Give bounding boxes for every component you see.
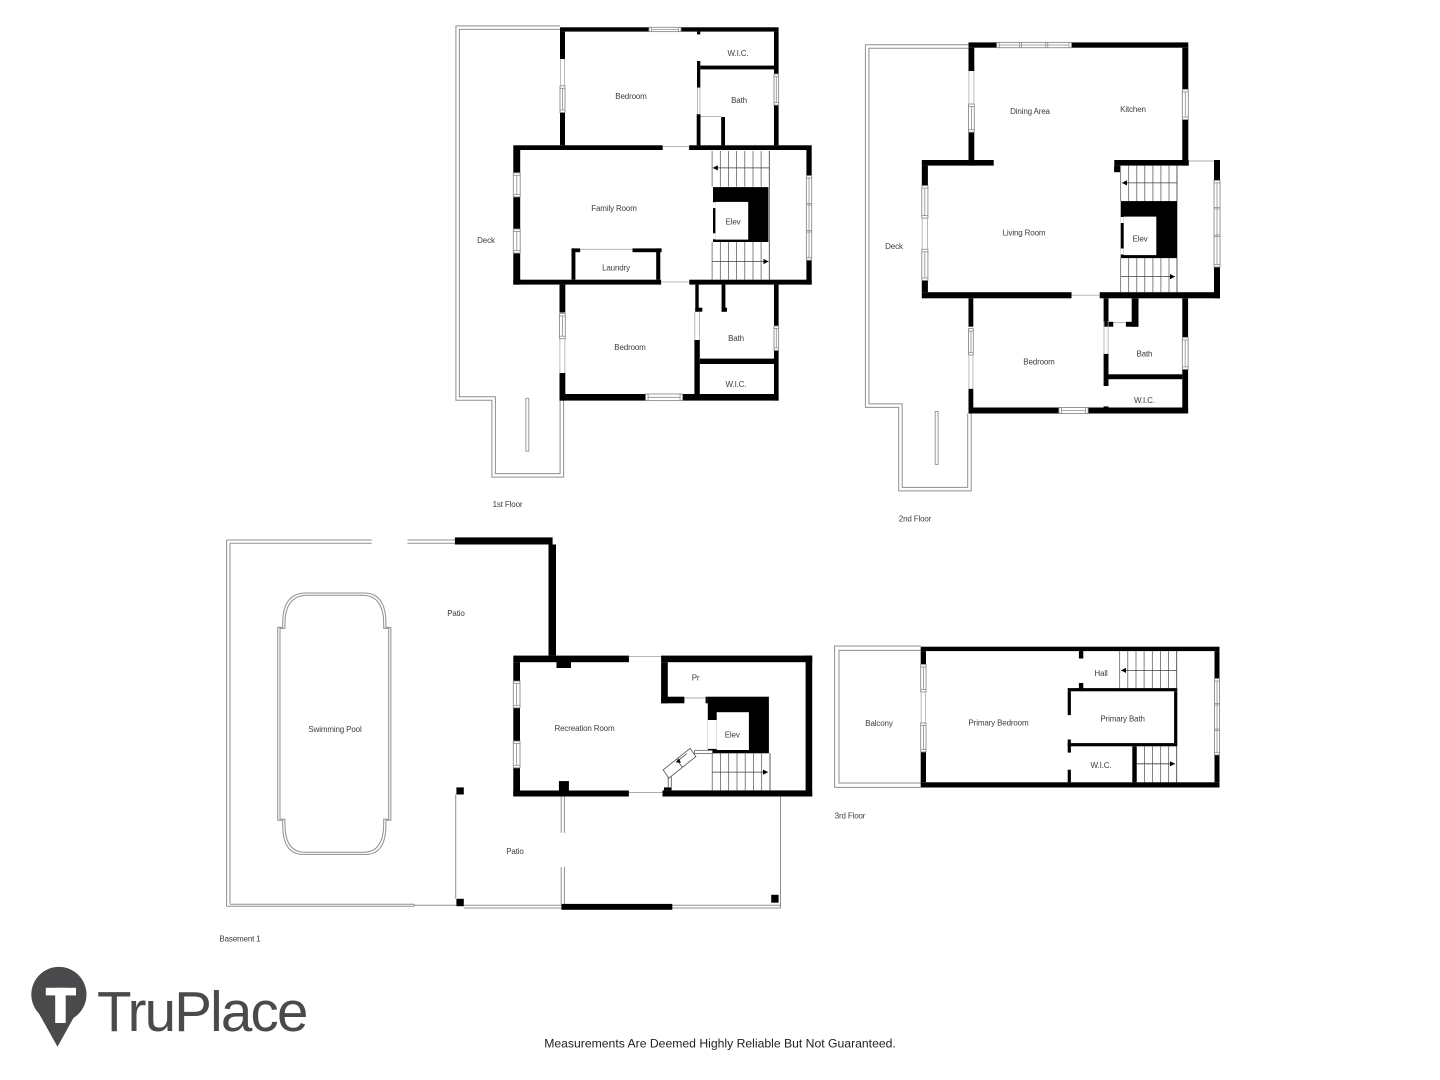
svg-text:Bedroom: Bedroom <box>1023 358 1055 367</box>
svg-text:Bath: Bath <box>1136 349 1152 358</box>
svg-text:Elev: Elev <box>726 217 741 226</box>
svg-text:Elev: Elev <box>1133 235 1148 244</box>
svg-text:W.I.C.: W.I.C. <box>1091 761 1112 770</box>
svg-text:Primary Bath: Primary Bath <box>1100 715 1144 724</box>
svg-text:Swimming Pool: Swimming Pool <box>308 725 362 734</box>
svg-text:Recreation Room: Recreation Room <box>554 724 614 733</box>
svg-text:Primary Bedroom: Primary Bedroom <box>969 718 1029 727</box>
svg-text:Basement 1: Basement 1 <box>219 934 261 943</box>
svg-text:Pr: Pr <box>692 674 700 683</box>
svg-text:W.I.C.: W.I.C. <box>726 380 747 389</box>
svg-text:1st Floor: 1st Floor <box>493 500 523 509</box>
svg-text:Living Room: Living Room <box>1003 228 1046 237</box>
svg-text:Bath: Bath <box>731 96 747 105</box>
svg-text:TruPlace: TruPlace <box>97 980 307 1043</box>
svg-text:Laundry: Laundry <box>602 263 630 272</box>
svg-text:Hall: Hall <box>1094 669 1108 678</box>
svg-text:Measurements Are Deemed Highly: Measurements Are Deemed Highly Reliable … <box>544 1036 896 1050</box>
svg-text:Family Room: Family Room <box>591 204 637 213</box>
svg-text:Patio: Patio <box>447 609 465 618</box>
svg-text:W.I.C.: W.I.C. <box>728 49 749 58</box>
svg-text:2nd Floor: 2nd Floor <box>899 514 932 523</box>
svg-text:Bath: Bath <box>728 334 744 343</box>
svg-text:Patio: Patio <box>506 847 524 856</box>
svg-text:Kitchen: Kitchen <box>1120 105 1146 114</box>
svg-text:Elev: Elev <box>725 730 740 739</box>
svg-text:Bedroom: Bedroom <box>614 343 646 352</box>
svg-text:W.I.C.: W.I.C. <box>1134 396 1155 405</box>
svg-text:Deck: Deck <box>885 242 904 251</box>
svg-text:Balcony: Balcony <box>865 719 893 728</box>
svg-text:Dining Area: Dining Area <box>1010 107 1050 116</box>
svg-text:3rd Floor: 3rd Floor <box>835 811 866 820</box>
svg-text:Deck: Deck <box>477 236 496 245</box>
svg-text:Bedroom: Bedroom <box>615 92 647 101</box>
